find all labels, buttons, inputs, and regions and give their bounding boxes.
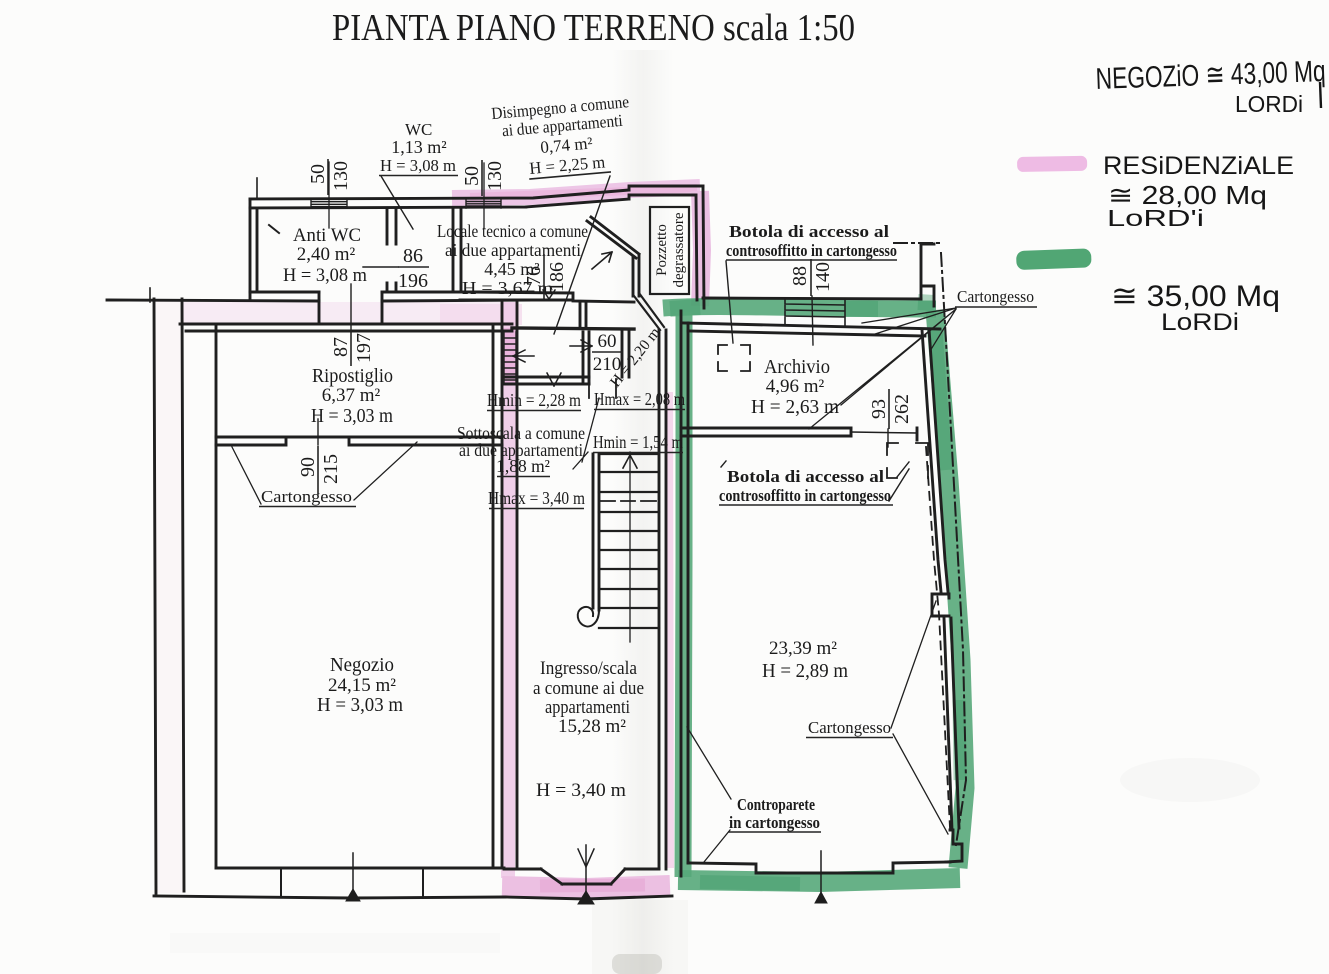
svg-text:a comune ai due: a comune ai due [533,678,644,699]
svg-text:50: 50 [461,166,483,186]
svg-text:262: 262 [891,394,913,424]
svg-text:2,40 m²: 2,40 m² [297,244,356,265]
svg-text:LoRD'i: LoRD'i [1107,205,1204,231]
svg-text:Cartongesso: Cartongesso [808,718,891,737]
svg-text:24,15 m²: 24,15 m² [328,675,396,696]
svg-text:1,88 m²: 1,88 m² [496,456,550,476]
svg-text:Controparete: Controparete [737,795,815,814]
svg-text:130: 130 [484,161,506,191]
svg-text:Hmin = 2,28 m: Hmin = 2,28 m [487,390,581,410]
svg-text:87: 87 [330,337,352,357]
svg-text:LoRDi: LoRDi [1161,309,1239,336]
svg-text:88: 88 [789,266,811,286]
svg-text:197: 197 [353,333,375,363]
svg-text:215: 215 [320,454,342,484]
svg-text:Pozzetto: Pozzetto [654,224,670,276]
svg-text:controsoffitto in cartongesso: controsoffitto in cartongesso [719,486,891,505]
svg-text:H = 3,08 m: H = 3,08 m [380,156,456,175]
svg-text:degrassatore: degrassatore [671,212,687,287]
svg-text:H = 2,63 m: H = 2,63 m [751,397,839,418]
svg-text:LORDi: LORDi [1235,91,1303,117]
svg-text:Ripostiglio: Ripostiglio [312,366,393,387]
svg-text:Hmax = 2,08 m: Hmax = 2,08 m [594,389,685,409]
svg-text:H = 2,89 m: H = 2,89 m [762,661,848,682]
svg-text:Cartongesso: Cartongesso [957,287,1034,306]
svg-text:PIANTA PIANO TERRENO scala 1:5: PIANTA PIANO TERRENO scala 1:50 [332,7,855,49]
svg-text:23,39 m²: 23,39 m² [769,638,837,659]
svg-text:50: 50 [307,164,329,184]
svg-text:Cartongesso: Cartongesso [261,487,352,506]
svg-text:Hmax = 3,40 m: Hmax = 3,40 m [488,488,585,508]
svg-text:RESiDENZiALE: RESiDENZiALE [1103,152,1294,180]
svg-text:210: 210 [593,354,622,375]
svg-text:H = 3,08 m: H = 3,08 m [283,265,367,286]
svg-text:ai due appartamenti: ai due appartamenti [445,240,581,260]
svg-text:130: 130 [330,161,352,191]
svg-text:60: 60 [598,331,617,352]
svg-text:86: 86 [403,245,423,267]
svg-text:90: 90 [297,457,319,477]
svg-text:Botola di accesso al: Botola di accesso al [729,222,889,241]
svg-text:93: 93 [868,399,890,419]
svg-text:196: 196 [398,270,428,292]
svg-text:Archivio: Archivio [764,357,830,378]
svg-text:6,37 m²: 6,37 m² [322,385,381,406]
svg-text:H = 3,03 m: H = 3,03 m [311,406,393,427]
svg-text:Botola di accesso al: Botola di accesso al [727,467,884,486]
svg-text:Anti WC: Anti WC [293,225,361,246]
svg-text:Hmin = 1,54 m: Hmin = 1,54 m [593,432,683,452]
svg-text:76: 76 [523,266,545,286]
svg-text:Negozio: Negozio [330,655,394,676]
svg-text:controsoffitto in cartongesso: controsoffitto in cartongesso [726,241,897,260]
svg-text:H = 3,03 m: H = 3,03 m [317,695,403,716]
svg-text:in cartongesso: in cartongesso [729,813,820,832]
svg-text:186: 186 [546,262,568,292]
svg-text:Ingresso/scala: Ingresso/scala [540,658,637,679]
svg-text:Locale tecnico a comune: Locale tecnico a comune [437,221,588,241]
svg-text:1,13 m²: 1,13 m² [391,137,446,157]
svg-text:H = 3,40 m: H = 3,40 m [536,780,626,801]
svg-text:4,96 m²: 4,96 m² [766,376,825,397]
svg-text:15,28 m²: 15,28 m² [558,716,626,737]
svg-text:140: 140 [812,262,834,292]
svg-text:appartamenti: appartamenti [545,697,630,718]
